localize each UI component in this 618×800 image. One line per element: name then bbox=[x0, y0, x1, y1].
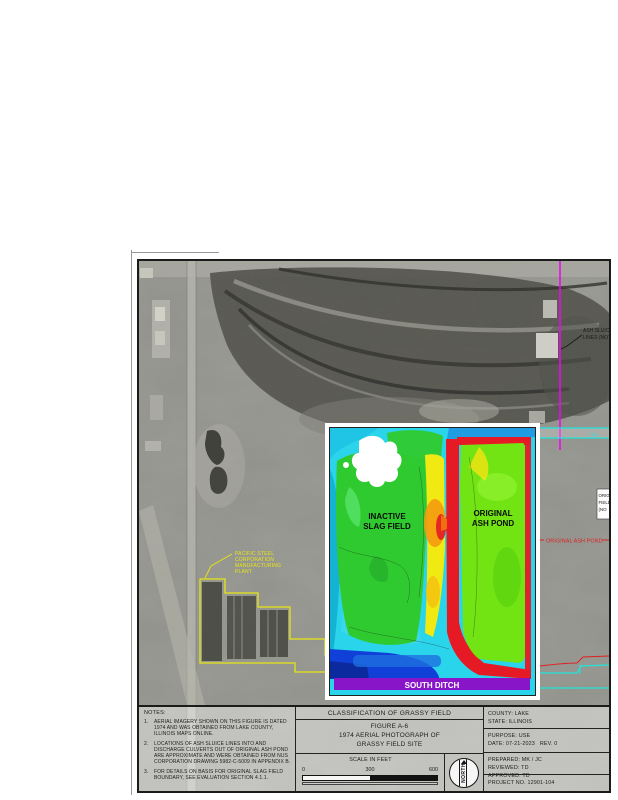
north-arrow-icon: NORTH bbox=[449, 758, 479, 788]
sheet-corner-tick-horizontal bbox=[131, 252, 219, 253]
scale-label: SCALE IN FEET bbox=[296, 757, 445, 763]
original-ash-pond-label-line1: ORIGINAL bbox=[473, 509, 512, 518]
note-3: 3. FOR DETAILS ON BASIS FOR ORIGINAL SLA… bbox=[144, 769, 291, 781]
title-center-cell: CLASSIFICATION OF GRASSY FIELD FIGURE A-… bbox=[296, 707, 484, 791]
signoff-row: PREPARED: MK / JC REVIEWED: TD APPROVED:… bbox=[484, 753, 609, 775]
note-2-text: LOCATIONS OF ASH SLUICE LINES INTO AND D… bbox=[154, 741, 291, 765]
purpose-date-row: PURPOSE: USE DATE: 07-21-2023 REV. 0 bbox=[484, 729, 609, 753]
scale-tick-300: 300 bbox=[366, 767, 375, 773]
scale-tick-600: 600 bbox=[429, 767, 438, 773]
county-value: COUNTY: LAKE bbox=[488, 710, 609, 718]
overlay-unclassified-dot bbox=[343, 462, 349, 468]
notes-cell: NOTES: 1. AERIAL IMAGERY SHOWN ON THIS F… bbox=[139, 707, 296, 791]
figure-title-line2: 1974 AERIAL PHOTOGRAPH OF bbox=[339, 732, 440, 741]
north-label: NORTH bbox=[461, 763, 467, 783]
classification-overlay-panel: INACTIVE SLAG FIELD ORIGINAL ASH POND SO… bbox=[325, 423, 540, 700]
scale-and-north-row: SCALE IN FEET 0 300 600 NORTH bbox=[296, 754, 483, 791]
date-value: DATE: 07-21-2023 REV. 0 bbox=[488, 740, 609, 748]
county-state-row: COUNTY: LAKE STATE: ILLINOIS bbox=[484, 707, 609, 729]
figure-frame: PACIFIC STEEL CORPORATION MANUFACTURING … bbox=[137, 259, 611, 793]
note-2-number: 2. bbox=[144, 741, 154, 765]
prepared-value: PREPARED: MK / JC bbox=[488, 756, 609, 764]
inactive-slag-field-label-line2: SLAG FIELD bbox=[363, 522, 411, 531]
purpose-value: PURPOSE: USE bbox=[488, 732, 609, 740]
scale-bar-secondary bbox=[302, 782, 438, 785]
classification-title: CLASSIFICATION OF GRASSY FIELD bbox=[296, 707, 483, 720]
project-number-row: PROJECT NO. 12901-104 bbox=[484, 775, 609, 791]
sheet-corner-tick-vertical bbox=[131, 250, 132, 795]
south-ditch-label: SOUTH DITCH bbox=[405, 681, 460, 690]
note-1-number: 1. bbox=[144, 719, 154, 737]
overlay-unclassified-blob bbox=[352, 436, 402, 487]
overlay-pond-zone bbox=[460, 443, 525, 663]
figure-title-line3: GRASSY FIELD SITE bbox=[357, 741, 423, 750]
scale-bar bbox=[302, 775, 438, 781]
reviewed-value: REVIEWED: TD bbox=[488, 764, 609, 772]
north-arrow-cell: NORTH bbox=[444, 754, 483, 791]
notes-heading: NOTES: bbox=[144, 710, 291, 716]
figure-number: FIGURE A-6 bbox=[371, 723, 409, 732]
note-1: 1. AERIAL IMAGERY SHOWN ON THIS FIGURE I… bbox=[144, 719, 291, 737]
project-number-value: PROJECT NO. 12901-104 bbox=[488, 779, 609, 787]
classification-map: INACTIVE SLAG FIELD ORIGINAL ASH POND SO… bbox=[329, 427, 536, 696]
note-3-number: 3. bbox=[144, 769, 154, 781]
scale-tick-0: 0 bbox=[302, 767, 305, 773]
note-1-text: AERIAL IMAGERY SHOWN ON THIS FIGURE IS D… bbox=[154, 719, 291, 737]
inactive-slag-field-label-line1: INACTIVE bbox=[368, 512, 406, 521]
report-page: { "sheet": { "background": "#ffffff" }, … bbox=[0, 0, 618, 800]
original-ash-pond-label-line2: ASH POND bbox=[472, 519, 514, 528]
info-cell: COUNTY: LAKE STATE: ILLINOIS PURPOSE: US… bbox=[484, 707, 609, 791]
title-block: NOTES: 1. AERIAL IMAGERY SHOWN ON THIS F… bbox=[139, 705, 609, 791]
state-value: STATE: ILLINOIS bbox=[488, 718, 609, 726]
note-2: 2. LOCATIONS OF ASH SLUICE LINES INTO AN… bbox=[144, 741, 291, 765]
note-3-text: FOR DETAILS ON BASIS FOR ORIGINAL SLAG F… bbox=[154, 769, 291, 781]
figure-title: FIGURE A-6 1974 AERIAL PHOTOGRAPH OF GRA… bbox=[296, 720, 483, 754]
